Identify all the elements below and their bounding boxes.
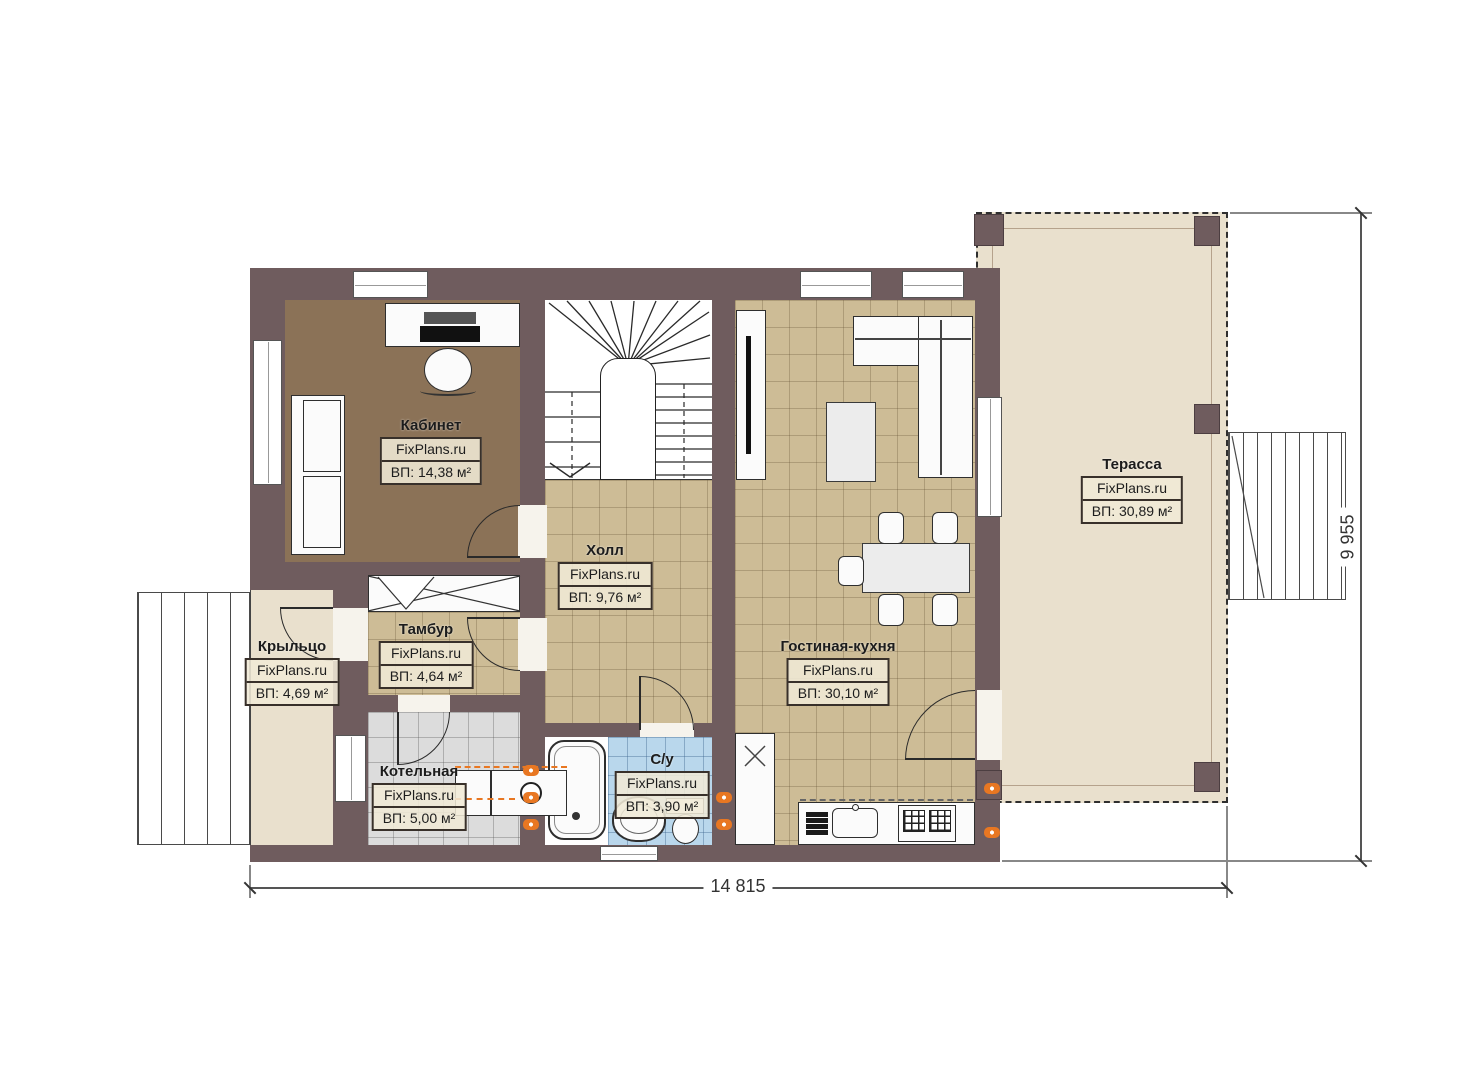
radiator-icon [523, 819, 539, 830]
corner-sofa [918, 316, 973, 478]
room-area: ВП: 4,69 м² [247, 681, 338, 704]
room-label-tambur: Тамбур FixPlans.ru ВП: 4,64 м² [379, 621, 474, 689]
door-opening [977, 690, 1002, 760]
room-info-box: FixPlans.ru ВП: 3,90 м² [615, 771, 710, 819]
extension-line [1002, 860, 1372, 862]
radiator-icon [523, 765, 539, 776]
watermark: FixPlans.ru [1083, 478, 1181, 499]
room-name: С/у [615, 751, 710, 768]
dining-table [862, 543, 970, 593]
room-label-holl: Холл FixPlans.ru ВП: 9,76 м² [558, 542, 653, 610]
wardrobe [368, 575, 520, 612]
window [600, 846, 658, 861]
room-info-box: FixPlans.ru ВП: 5,00 м² [372, 783, 467, 831]
room-name: Кабинет [380, 417, 482, 434]
room-name: Котельная [372, 763, 467, 780]
room-label-krylco: Крыльцо FixPlans.ru ВП: 4,69 м² [245, 638, 340, 706]
room-area: ВП: 30,10 м² [789, 681, 887, 704]
kitchen-drainboard [806, 812, 828, 836]
door-leaf [467, 556, 520, 558]
boiler-divider [490, 770, 492, 816]
room-info-box: FixPlans.ru ВП: 30,89 м² [1081, 476, 1183, 524]
floor-plan: Кабинет FixPlans.ru ВП: 14,38 м² Холл Fi… [0, 0, 1473, 1080]
radiator-icon [984, 827, 1000, 838]
dimension-right-line [1360, 213, 1362, 861]
corner-sofa-seam [940, 320, 942, 475]
radiator-icon [716, 792, 732, 803]
stove-burner-grid [929, 810, 951, 832]
room-label-su: С/у FixPlans.ru ВП: 3,90 м² [615, 751, 710, 819]
door-leaf [467, 617, 520, 619]
window [977, 397, 1002, 517]
dining-chair [932, 594, 958, 626]
room-info-box: FixPlans.ru ВП: 4,69 м² [245, 658, 340, 706]
window [902, 271, 964, 298]
watermark: FixPlans.ru [560, 564, 651, 585]
window [353, 271, 428, 298]
radiator-icon [984, 783, 1000, 794]
room-name: Терасса [1081, 456, 1183, 473]
room-label-terassa: Терасса FixPlans.ru ВП: 30,89 м² [1081, 456, 1183, 524]
room-area: ВП: 3,90 м² [617, 794, 708, 817]
door-opening [518, 618, 547, 671]
watermark: FixPlans.ru [247, 660, 338, 681]
exterior-stairs-left [137, 592, 250, 845]
room-area: ВП: 14,38 м² [382, 460, 480, 483]
dining-chair [878, 512, 904, 544]
room-info-box: FixPlans.ru ВП: 4,64 м² [379, 641, 474, 689]
room-label-gostinaya-kuhnya: Гостиная-кухня FixPlans.ru ВП: 30,10 м² [781, 638, 896, 706]
radiator-icon [523, 792, 539, 803]
dining-chair [838, 556, 864, 586]
room-name: Тамбур [379, 621, 474, 638]
computer [420, 326, 480, 342]
window [800, 271, 872, 298]
office-chair-back [420, 386, 476, 396]
radiator-icon [716, 819, 732, 830]
dimension-height-label: 9 955 [1338, 507, 1359, 566]
dining-chair [932, 512, 958, 544]
door-leaf [639, 676, 641, 730]
extension-line [1226, 806, 1228, 898]
room-info-box: FixPlans.ru ВП: 9,76 м² [558, 562, 653, 610]
terrace-post [1194, 216, 1220, 246]
door-leaf [905, 758, 975, 760]
stair-void [600, 358, 656, 480]
window [253, 340, 282, 485]
room-area: ВП: 9,76 м² [560, 585, 651, 608]
printer [424, 312, 476, 324]
bathtub-drain [572, 812, 580, 820]
heating-pipe [455, 766, 567, 768]
tv-stand [736, 310, 766, 480]
exterior-stairs-right [1228, 432, 1346, 600]
window [335, 735, 366, 802]
sofa-office-cushion [303, 400, 341, 472]
kitchen-counter-corner [735, 733, 775, 845]
watermark: FixPlans.ru [382, 439, 480, 460]
watermark: FixPlans.ru [374, 785, 465, 806]
upper-cabinets-line [800, 799, 973, 801]
room-area: ВП: 4,64 м² [381, 664, 472, 687]
room-info-box: FixPlans.ru ВП: 30,10 м² [787, 658, 889, 706]
terrace-post [1194, 404, 1220, 434]
watermark: FixPlans.ru [381, 643, 472, 664]
room-label-kabinet: Кабинет FixPlans.ru ВП: 14,38 м² [380, 417, 482, 485]
room-name: Гостиная-кухня [781, 638, 896, 655]
dining-chair [878, 594, 904, 626]
door-opening [398, 695, 450, 712]
room-name: Холл [558, 542, 653, 559]
coffee-table [826, 402, 876, 482]
watermark: FixPlans.ru [617, 773, 708, 794]
sofa-office-cushion [303, 476, 341, 548]
room-name: Крыльцо [245, 638, 340, 655]
extension-line [249, 865, 251, 898]
door-leaf [397, 712, 399, 765]
room-area: ВП: 5,00 м² [374, 806, 465, 829]
boiler [455, 770, 567, 816]
room-label-kotelnaya: Котельная FixPlans.ru ВП: 5,00 м² [372, 763, 467, 831]
dimension-width-label: 14 815 [703, 876, 772, 897]
door-opening [518, 505, 547, 558]
kitchen-faucet [852, 804, 859, 811]
terrace-post [1194, 762, 1220, 792]
kitchen-sink [832, 808, 878, 838]
tv [746, 336, 751, 454]
watermark: FixPlans.ru [789, 660, 887, 681]
stove-burner-grid [903, 810, 925, 832]
corner-sofa-seam [855, 338, 971, 340]
room-area: ВП: 30,89 м² [1083, 499, 1181, 522]
room-info-box: FixPlans.ru ВП: 14,38 м² [380, 437, 482, 485]
door-leaf [280, 607, 333, 609]
terrace-post [974, 214, 1004, 246]
extension-line [1230, 212, 1372, 214]
